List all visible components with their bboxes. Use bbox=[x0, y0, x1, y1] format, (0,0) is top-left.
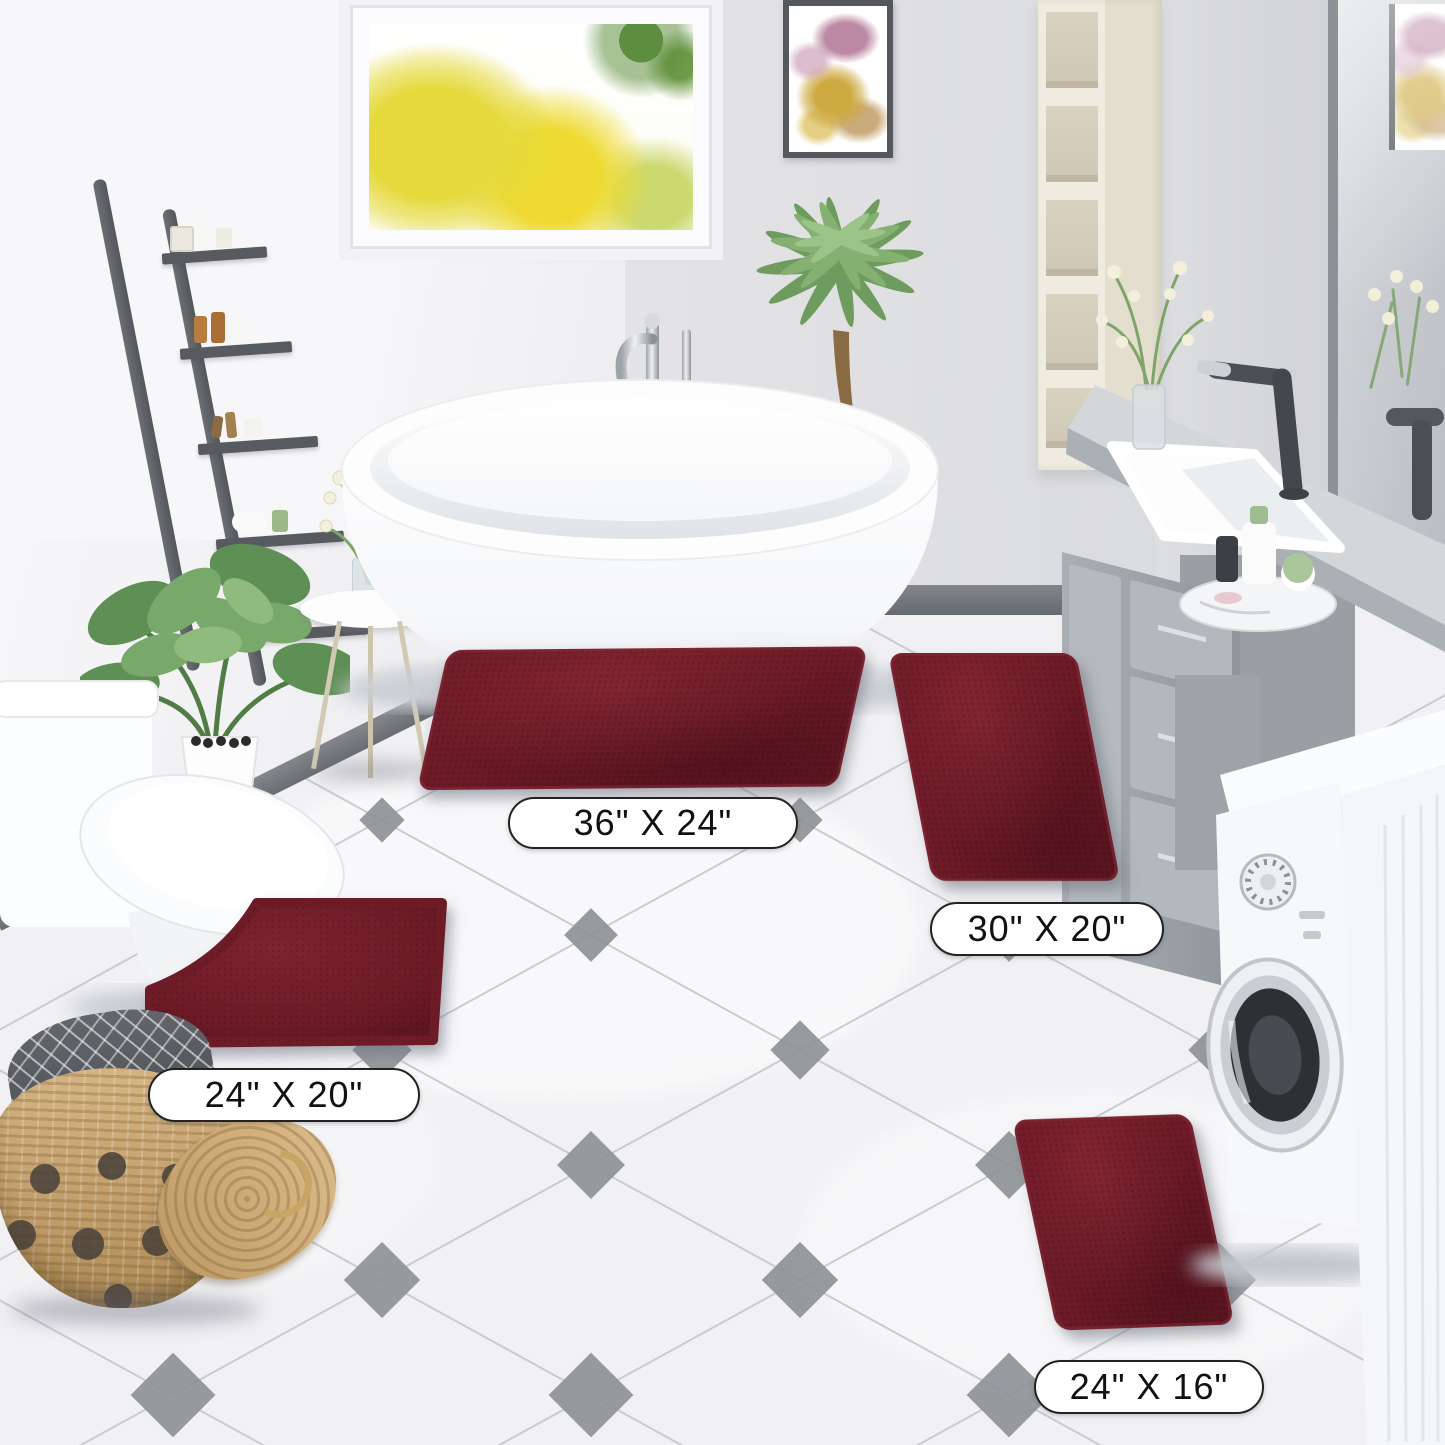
wood-brush bbox=[225, 412, 238, 439]
amber-bottle bbox=[211, 312, 225, 343]
window bbox=[353, 8, 709, 246]
wood-brush bbox=[211, 415, 224, 438]
size-label-24x20: 24" X 20" bbox=[148, 1068, 420, 1122]
washer-dial bbox=[1241, 855, 1295, 909]
black-pump-bottle bbox=[1216, 536, 1238, 582]
size-label-24x16: 24" X 16" bbox=[1034, 1360, 1264, 1414]
laundry-cabinet-side bbox=[1340, 767, 1445, 1445]
amber-bottle bbox=[194, 316, 207, 343]
white-bottle bbox=[198, 220, 210, 248]
toilet-tank-lid bbox=[0, 681, 158, 717]
basket-shadow bbox=[10, 1295, 260, 1325]
wall-art bbox=[783, 0, 893, 158]
white-bottle bbox=[229, 320, 241, 343]
wall-art-watercolor bbox=[789, 6, 887, 152]
glass-jar bbox=[170, 226, 194, 252]
soap-dispenser bbox=[1242, 522, 1276, 584]
cabinet-shelf-slot bbox=[1046, 12, 1098, 88]
size-label-36x24: 36" X 24" bbox=[508, 797, 798, 849]
cream-jar bbox=[216, 228, 232, 248]
size-label-30x20: 30" X 20" bbox=[930, 902, 1164, 956]
white-jar bbox=[244, 418, 262, 438]
window-autumn-trees bbox=[369, 24, 693, 230]
cabinet-shelf-slot bbox=[1046, 106, 1098, 182]
laundry-corner bbox=[1175, 675, 1445, 1445]
bathroom-product-scene: 36" X 24" 30" X 20" 24" X 20" 24" X 16" bbox=[0, 0, 1445, 1445]
bath-mat-36x24 bbox=[417, 646, 868, 790]
